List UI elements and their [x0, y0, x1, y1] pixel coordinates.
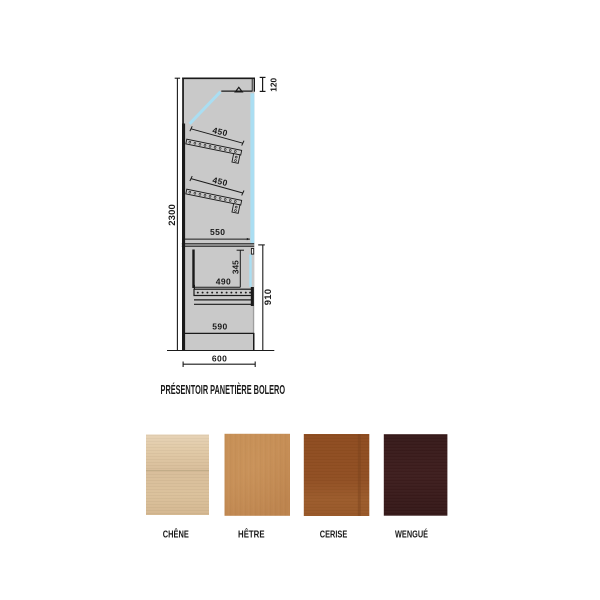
svg-text:2300: 2300: [167, 204, 178, 226]
svg-text:910: 910: [263, 289, 274, 305]
svg-text:PRÉSENTOIR PANETIÈRE BOLERO: PRÉSENTOIR PANETIÈRE BOLERO: [161, 382, 286, 397]
svg-text:HÊTRE: HÊTRE: [238, 527, 265, 540]
svg-text:590: 590: [212, 322, 227, 332]
svg-text:WENGUÉ: WENGUÉ: [395, 527, 428, 540]
svg-text:550: 550: [210, 227, 225, 237]
svg-text:345: 345: [230, 260, 240, 274]
svg-text:490: 490: [216, 277, 231, 287]
svg-text:120: 120: [269, 77, 279, 91]
svg-text:CERISE: CERISE: [320, 528, 348, 540]
svg-text:600: 600: [212, 354, 227, 364]
svg-text:CHÊNE: CHÊNE: [163, 527, 189, 540]
